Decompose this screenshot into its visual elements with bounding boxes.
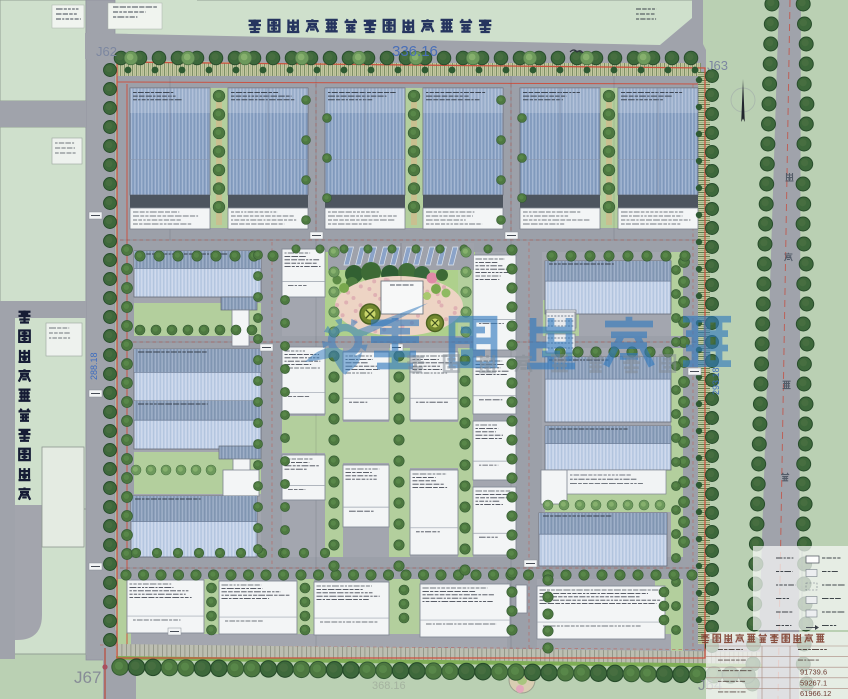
svg-text:59267.1: 59267.1 bbox=[800, 678, 827, 687]
svg-text:J62: J62 bbox=[96, 44, 117, 59]
svg-text:J63: J63 bbox=[707, 58, 728, 73]
svg-text:336.16: 336.16 bbox=[392, 43, 438, 60]
svg-text:293.18: 293.18 bbox=[711, 367, 721, 395]
svg-text:61966.12: 61966.12 bbox=[800, 689, 831, 698]
svg-text:91739.6: 91739.6 bbox=[800, 668, 827, 677]
svg-text:288.18: 288.18 bbox=[89, 352, 99, 380]
svg-text:368.16: 368.16 bbox=[372, 680, 406, 692]
svg-text:J67: J67 bbox=[74, 668, 101, 687]
